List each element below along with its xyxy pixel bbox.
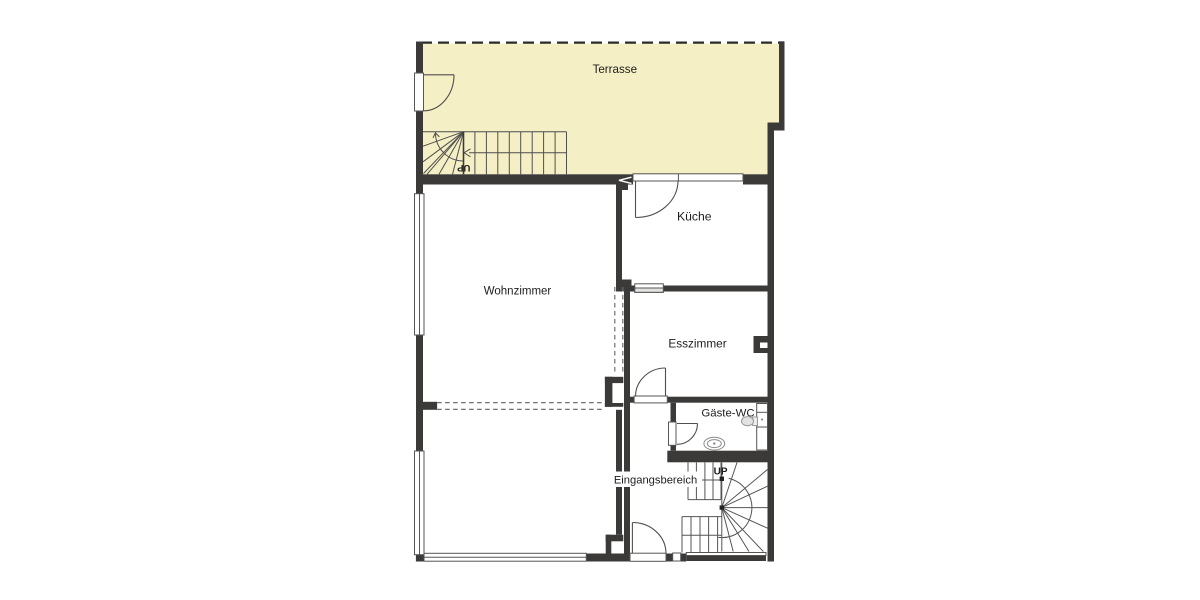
svg-text:Küche: Küche	[677, 209, 712, 223]
svg-text:Wohnzimmer: Wohnzimmer	[484, 286, 552, 298]
svg-text:UP: UP	[714, 466, 728, 477]
svg-text:UP: UP	[457, 162, 471, 173]
svg-text:Esszimmer: Esszimmer	[668, 336, 726, 350]
svg-text:Eingangsbereich: Eingangsbereich	[614, 475, 697, 487]
svg-text:Gäste-WC: Gäste-WC	[701, 408, 754, 420]
svg-text:Terrasse: Terrasse	[593, 63, 637, 76]
